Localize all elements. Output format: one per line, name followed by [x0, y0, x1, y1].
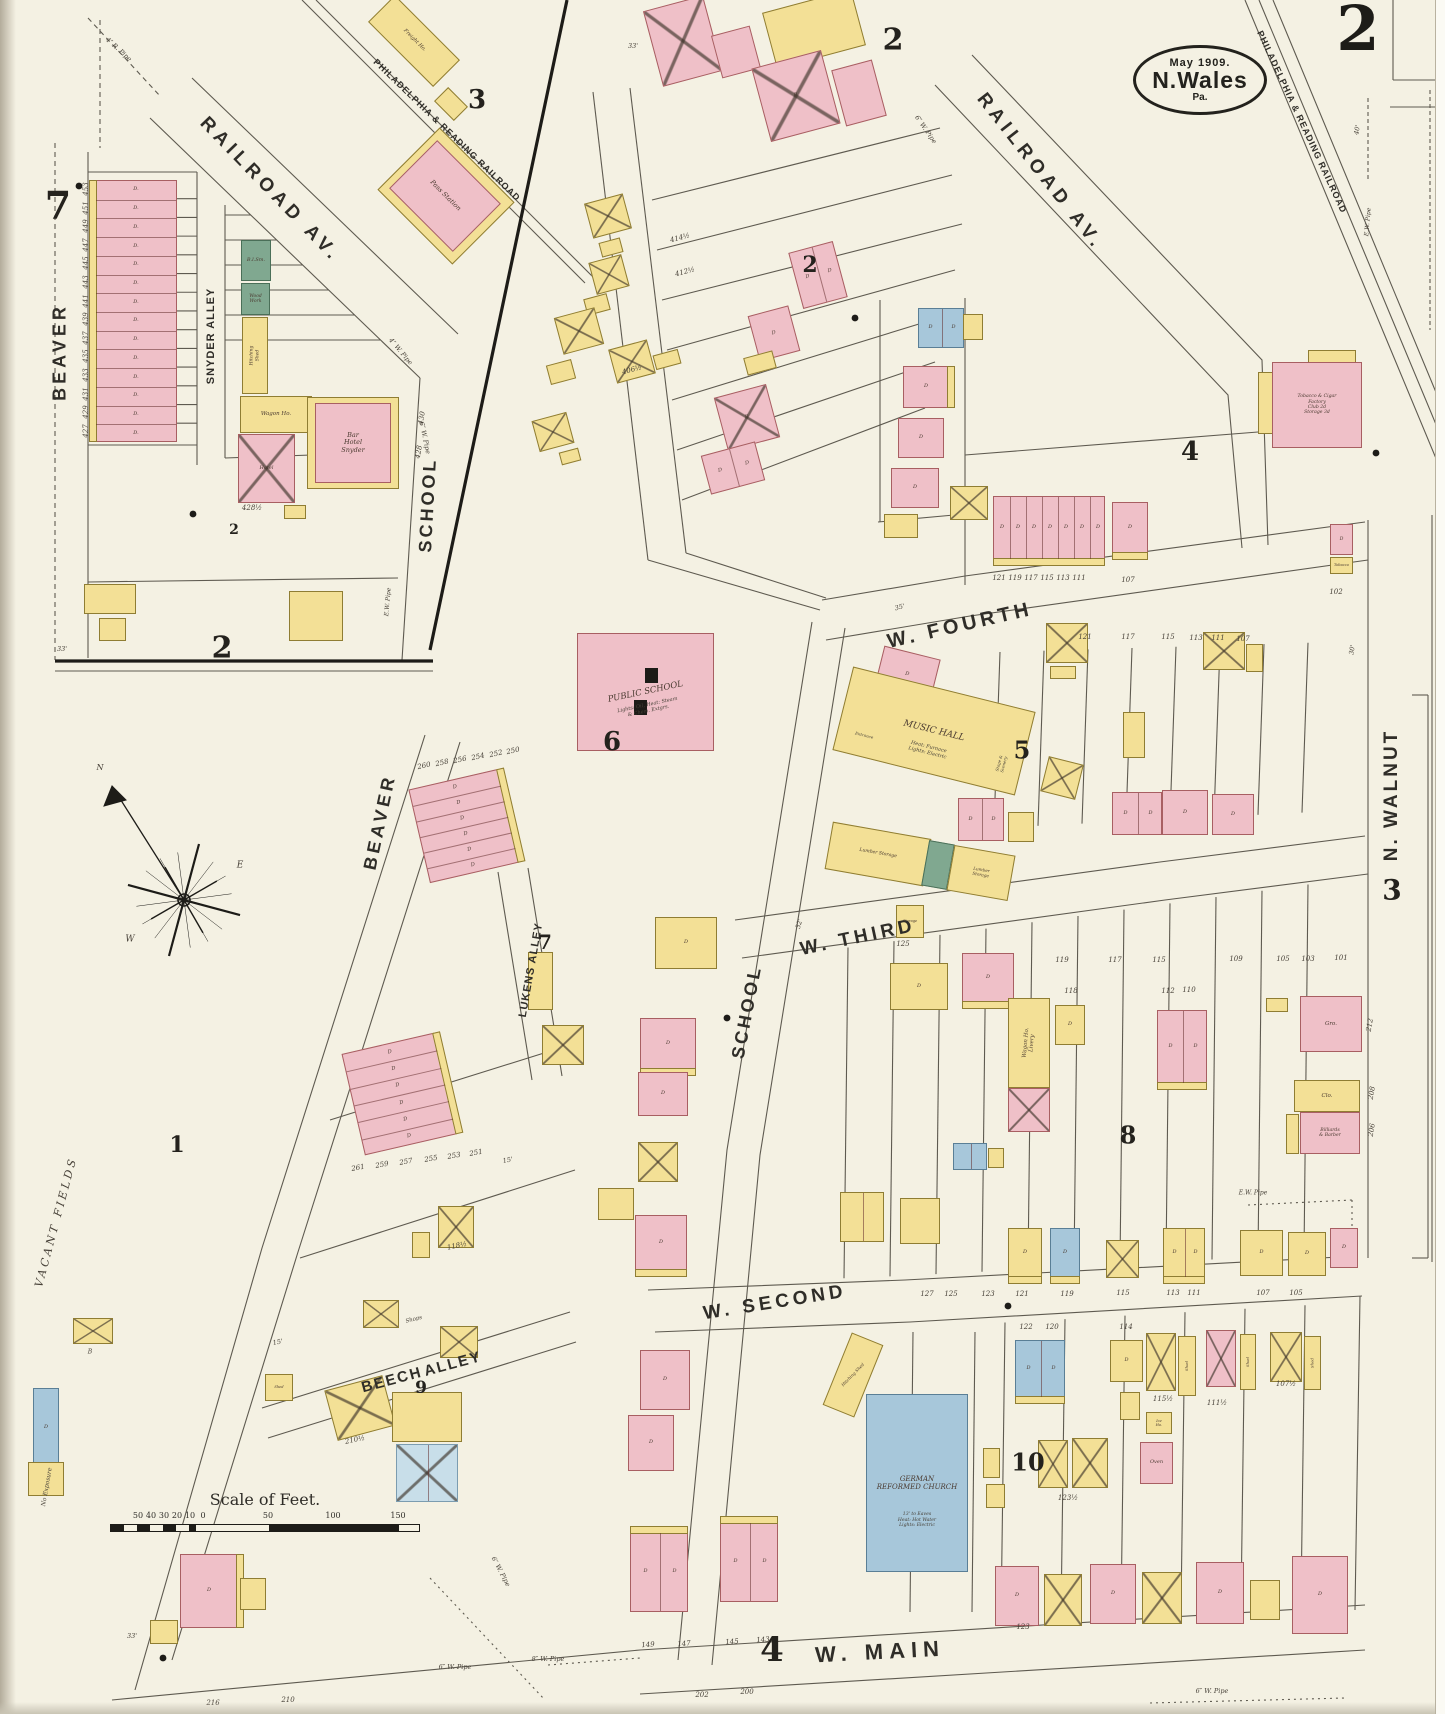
- barn: [1044, 1574, 1082, 1626]
- blacksmith-shop: B.l.Sm.: [241, 240, 271, 281]
- livery: Wagon Ho. Livery: [1008, 998, 1050, 1088]
- scale-tick: 40: [146, 1511, 156, 1520]
- house-number: 435: [82, 349, 90, 362]
- scale-tick: 50: [263, 1511, 273, 1520]
- dwelling: D: [635, 1215, 687, 1271]
- outbuilding: [240, 1578, 266, 1610]
- map-annotation: 35': [894, 603, 906, 613]
- dwelling-pair: DD: [1163, 1228, 1205, 1278]
- map-annotation: E.W. Pipe: [1363, 207, 1373, 236]
- dwelling: D: [1055, 1005, 1085, 1045]
- block-number: 6: [603, 727, 621, 757]
- barn: [542, 1025, 584, 1065]
- porch: [962, 1001, 1014, 1009]
- street-label-beaver: BEAVER: [50, 303, 71, 401]
- house-number: 110: [1182, 986, 1195, 994]
- house-number: 115: [1116, 1289, 1129, 1297]
- building-label: Tobacco: [1331, 558, 1352, 573]
- porch: [635, 1269, 687, 1277]
- house-number: 117: [1108, 956, 1121, 964]
- map-annotation: 4″ W. Pipe: [386, 337, 413, 367]
- hitching-shed: Hitching Shed: [823, 1332, 884, 1417]
- house-number: 111: [1072, 574, 1085, 582]
- outbuilding: [1246, 644, 1263, 672]
- outbuilding: [284, 505, 306, 519]
- house-number: 123: [1016, 1623, 1029, 1631]
- house-number: 107: [1236, 635, 1249, 643]
- dwelling: [643, 0, 723, 87]
- outbuilding: [150, 1620, 178, 1644]
- building-label: D: [1009, 1229, 1041, 1277]
- building-label: D: [750, 1523, 779, 1601]
- dwelling: D: [1050, 1228, 1080, 1278]
- building-label: D: [959, 799, 982, 840]
- street-label-w-main: W. MAIN: [814, 1636, 945, 1669]
- scan-edge-bottom: [0, 1702, 1445, 1714]
- dwelling: D: [751, 50, 840, 142]
- sheet-number: 2: [1318, 0, 1398, 65]
- building-label: D: [1010, 497, 1026, 559]
- house-number: 111: [1211, 634, 1224, 642]
- rowhouses-beaver-lower: DDDDDD: [342, 1033, 458, 1156]
- building-label: D: [891, 964, 947, 1009]
- street-label-n-walnut: N. WALNUT: [1381, 729, 1403, 862]
- dwelling-pair: [953, 1143, 987, 1170]
- building-label: Lumber Storage: [948, 846, 1015, 900]
- building-label: D.: [96, 406, 176, 425]
- scale-tick: 50: [133, 1511, 143, 1520]
- outbuilding: [983, 1448, 1000, 1478]
- scale-label: Scale of Feet.: [110, 1490, 420, 1509]
- map-annotation: 6″ W. Pipe: [489, 1556, 511, 1589]
- building-label: D.: [96, 275, 176, 294]
- house-number: 145: [725, 1637, 739, 1646]
- house-number: 115: [1040, 574, 1053, 582]
- map-annotation: 30': [1348, 644, 1357, 655]
- building-label: GERMAN REFORMED CHURCH: [867, 1395, 967, 1571]
- dwelling: D: [1112, 502, 1148, 554]
- building-label: D: [721, 1523, 750, 1601]
- barn: [584, 193, 632, 238]
- dwelling: [900, 1198, 940, 1244]
- block-number: 4: [1181, 437, 1199, 467]
- map-annotation: 4″ R. Pipe: [103, 36, 132, 63]
- tobacco-shop: Tobacco: [1330, 557, 1353, 574]
- building-label: D: [982, 799, 1005, 840]
- building-label: D: [715, 385, 779, 450]
- scan-edge-right: [1435, 0, 1445, 1714]
- pass-station: Pass Station: [389, 140, 501, 252]
- billiards-barber: Billiards & Barber: [1300, 1112, 1360, 1154]
- house-number: 123½: [1058, 1494, 1078, 1502]
- scale-ticks: 5040302010050100150: [110, 1511, 420, 1523]
- building-label: D: [1183, 1011, 1208, 1083]
- building-label: D.: [96, 181, 176, 200]
- street-label-railroad-av-: RAILROAD AV.: [972, 89, 1108, 255]
- block-number: 2: [229, 522, 239, 538]
- house-number: 253: [447, 1151, 462, 1162]
- house-number: 449: [82, 219, 90, 232]
- house-number: 147: [677, 1639, 691, 1648]
- outbuilding: [84, 584, 136, 614]
- house-number: 441: [82, 294, 90, 307]
- building-label: Tobacco & Cigar Factory Club 2d Storage …: [1273, 363, 1361, 447]
- dwelling: D: [1292, 1556, 1348, 1634]
- street-label-school: SCHOOL: [728, 963, 767, 1060]
- dwelling: D: [1162, 790, 1208, 835]
- outbuilding: [559, 448, 582, 466]
- clothing-store: Clo.: [1294, 1080, 1360, 1112]
- scale-tick: 100: [325, 1511, 340, 1520]
- building-label: D.: [96, 424, 176, 443]
- scale-tick: 150: [390, 1511, 405, 1520]
- block-number: 3: [468, 85, 486, 115]
- block-number: 7: [538, 930, 552, 954]
- building-label: Bar Hotel Snyder: [316, 404, 390, 482]
- building-label: D: [753, 51, 840, 141]
- building-label: D: [1185, 1229, 1206, 1277]
- dwelling: [392, 1392, 462, 1442]
- building-label: D: [1113, 793, 1138, 834]
- house-number: 117: [1024, 574, 1037, 582]
- building-label: D: [656, 918, 716, 968]
- dwelling: D: [1288, 1232, 1326, 1276]
- rowhouses-w-fourth: DDDDDDD: [993, 496, 1105, 560]
- outbuilding: [884, 514, 918, 538]
- house-number: 119: [1060, 1290, 1073, 1298]
- house-number: 107: [1256, 1289, 1269, 1297]
- barn: [1072, 1438, 1108, 1488]
- house-number: 443: [82, 275, 90, 288]
- rowhouses-beaver: D.D.D.D.D.D.D.D.D.D.D.D.D.D.: [95, 180, 177, 442]
- scale-tick: 30: [159, 1511, 169, 1520]
- outbuilding: [1250, 1580, 1280, 1620]
- building-label: D: [1074, 497, 1090, 559]
- building-label: D: [1293, 1557, 1347, 1633]
- dwelling-pair: DD: [1157, 1010, 1207, 1084]
- german-reformed-church: GERMAN REFORMED CHURCH: [866, 1394, 968, 1572]
- wagon-house: Wagon Ho.: [240, 396, 312, 433]
- house-number: 445: [82, 256, 90, 269]
- lumber-storage: Lumber Storage: [946, 845, 1015, 901]
- dwelling: D: [1110, 1340, 1143, 1382]
- dwelling: D: [640, 1350, 690, 1410]
- house-number: 260: [417, 760, 432, 771]
- house-number: 429: [82, 405, 90, 418]
- house-number: 212: [1365, 1018, 1376, 1033]
- building-label: D: [919, 309, 942, 347]
- outbuilding: [598, 1188, 634, 1220]
- house-number: 105: [1276, 955, 1289, 963]
- outbuilding: [988, 1148, 1004, 1168]
- building-label: D: [899, 419, 943, 457]
- house-number: 109: [1229, 955, 1242, 963]
- house-number: 206: [1367, 1123, 1378, 1138]
- house-number: 200: [740, 1688, 753, 1696]
- porch: [1008, 1276, 1042, 1284]
- building-label: PUBLIC SCHOOL: [567, 621, 723, 763]
- barn: [73, 1318, 113, 1344]
- house-number: 451: [82, 201, 90, 214]
- house-number: 119: [1055, 956, 1068, 964]
- building-label: Wood Work: [242, 284, 269, 314]
- house-number: 117: [1121, 633, 1134, 641]
- dwelling: D: [1240, 1230, 1283, 1276]
- outbuilding: [743, 350, 777, 375]
- house-number: 439: [82, 312, 90, 325]
- house-number: 121: [1015, 1290, 1028, 1298]
- building-label: Hotel: [239, 435, 294, 502]
- porch: [947, 366, 955, 408]
- street-label-w-third: W. THIRD: [798, 915, 918, 961]
- building-label: D: [1241, 1231, 1282, 1275]
- building-label: D: [1164, 1229, 1185, 1277]
- block-number: 2: [212, 631, 233, 666]
- shed: Shed: [1240, 1334, 1256, 1390]
- building-label: D: [994, 497, 1010, 559]
- house-number: 113: [1189, 634, 1202, 642]
- building-label: D.: [96, 387, 176, 406]
- shed: Shed: [1304, 1336, 1321, 1390]
- building-label: D: [1111, 1341, 1142, 1381]
- building-label: D: [1016, 1341, 1041, 1397]
- map-annotation: 8″ W. Pipe: [532, 1656, 565, 1664]
- house-number: 113: [1056, 574, 1069, 582]
- map-state: Pa.: [1192, 92, 1207, 103]
- block-number: 10: [1011, 1448, 1044, 1477]
- house-number: 149: [641, 1640, 655, 1649]
- dwelling-pair: DD: [1015, 1340, 1065, 1398]
- house-number: 107½: [1276, 1380, 1296, 1388]
- building-label: Lumber Storage: [826, 823, 930, 885]
- scale-tick: 20: [172, 1511, 182, 1520]
- map-annotation: N: [97, 763, 104, 773]
- house-number: 127: [920, 1290, 933, 1298]
- oven: Oven: [1140, 1442, 1173, 1484]
- building-label: D.: [96, 200, 176, 219]
- building-label: D: [1113, 503, 1147, 553]
- barn: [531, 412, 574, 452]
- building-label: Billiards & Barber: [1301, 1113, 1359, 1153]
- dwelling-pair: DD: [958, 798, 1004, 841]
- dwelling: D: [1330, 524, 1353, 555]
- block-number: 1: [169, 1132, 184, 1158]
- house-number: 125: [944, 1290, 957, 1298]
- building-label: D: [1163, 791, 1207, 834]
- map-annotation: 33': [127, 1633, 137, 1641]
- block-number: 2: [802, 252, 817, 278]
- building-label: D: [34, 1389, 58, 1467]
- building-label: D.: [96, 256, 176, 275]
- house-number: 250: [506, 745, 521, 756]
- barn: [1040, 756, 1084, 800]
- outbuilding: [289, 591, 343, 641]
- dwelling-pair: DD: [701, 441, 765, 494]
- house-number: 143: [756, 1635, 770, 1644]
- building-label: D: [636, 1216, 686, 1270]
- outbuilding: [653, 349, 682, 370]
- building-label: D: [641, 1019, 695, 1069]
- house-number: 258: [435, 757, 450, 768]
- building-label: D: [1158, 1011, 1183, 1083]
- house-number: 433: [82, 368, 90, 381]
- livery-barn: [1008, 1088, 1050, 1132]
- ice-house: Ice Ho.: [1146, 1412, 1172, 1434]
- house-number: 123: [981, 1290, 994, 1298]
- map-annotation: 15': [502, 1156, 513, 1166]
- dwelling: D: [638, 1072, 688, 1116]
- building-label: D: [749, 307, 799, 361]
- building-label: Shed: [1287, 1356, 1339, 1371]
- map-annotation: 33': [628, 43, 638, 51]
- map-annotation: B: [88, 1348, 92, 1355]
- building-label: Hitching Shed: [218, 344, 293, 368]
- outbuilding: [99, 618, 126, 641]
- dwelling: D: [748, 305, 801, 361]
- scan-edge-left: [0, 0, 16, 1714]
- house-number: 125: [896, 940, 909, 948]
- building-label: D: [1331, 1229, 1357, 1267]
- scale-tick: 0: [200, 1511, 205, 1520]
- building-label: D: [181, 1555, 237, 1627]
- building-label: Clo.: [1295, 1081, 1359, 1111]
- building-label: D.: [96, 331, 176, 350]
- house-number: 447: [82, 238, 90, 251]
- building-label: MUSIC HALL: [834, 668, 1035, 795]
- map-annotation: 13' to Eaves Heat: Hot Water Lights: Ele…: [898, 1512, 936, 1529]
- dwelling: D: [655, 917, 717, 969]
- house-number: 120: [1045, 1323, 1058, 1331]
- street-label-w-second: W. SECOND: [702, 1281, 848, 1325]
- block-number: 5: [1014, 736, 1031, 765]
- building-label: D: [639, 1073, 687, 1115]
- building-label: D.: [96, 368, 176, 387]
- house-number: 251: [469, 1148, 484, 1159]
- outbuilding: [963, 314, 983, 340]
- house-number: 121: [992, 574, 1005, 582]
- hotel-snyder: Bar Hotel Snyder: [315, 403, 391, 483]
- sanborn-map-sheet: D.D.D.D.D.D.D.D.D.D.D.D.D.D.B.l.Sm.Wood …: [0, 0, 1445, 1714]
- music-hall: MUSIC HALL: [832, 667, 1035, 796]
- house-number: 414½: [669, 231, 691, 244]
- building-label: D.: [96, 218, 176, 237]
- map-annotation: E.W. Pipe: [383, 587, 393, 616]
- house-number: 256: [453, 754, 468, 765]
- house-number: 261: [351, 1163, 366, 1174]
- building-label: Oven: [1141, 1443, 1172, 1483]
- house-number: 105: [1289, 1289, 1302, 1297]
- building-label: D: [1197, 1563, 1243, 1623]
- building-label: Hitching Shed: [815, 1337, 892, 1413]
- house-number: 114: [1119, 1323, 1132, 1331]
- block-number: 7: [45, 183, 71, 228]
- house-number: 427: [82, 424, 90, 437]
- outbuilding: [1266, 998, 1288, 1012]
- barn: [950, 486, 988, 520]
- outbuilding: [1123, 712, 1145, 758]
- building-label: D: [1091, 1565, 1135, 1623]
- barn: [554, 307, 604, 355]
- building-label: D: [1331, 525, 1352, 554]
- dwelling: D: [1330, 1228, 1358, 1268]
- house-number: 115: [1152, 956, 1165, 964]
- dwelling-pair: DD: [788, 241, 847, 309]
- house-number: 101: [1334, 954, 1347, 962]
- block-number: 9: [415, 1378, 427, 1398]
- grocery: Gro.: [1300, 996, 1362, 1052]
- street-label-w-fourth: W. FOURTH: [885, 598, 1035, 654]
- tobacco-cigar-factory: Tobacco & Cigar Factory Club 2d Storage …: [1272, 362, 1362, 448]
- scale-tick: 10: [185, 1511, 195, 1520]
- dwelling: D: [628, 1415, 674, 1471]
- house-number: 257: [399, 1157, 414, 1168]
- barn: [1046, 623, 1088, 663]
- outbuilding: [1050, 666, 1076, 679]
- dwelling: D: [33, 1388, 59, 1468]
- hotel: Hotel: [238, 434, 295, 503]
- outbuilding: [1120, 1392, 1140, 1420]
- building-label: D: [1138, 793, 1163, 834]
- barn: [1142, 1572, 1182, 1624]
- dwelling: D: [1196, 1562, 1244, 1624]
- barn: [1106, 1240, 1139, 1278]
- building-label: D: [1090, 497, 1106, 559]
- dwelling: D: [903, 366, 949, 408]
- barn: [608, 339, 656, 383]
- rowhouses-beaver-upper: DDDDDD: [408, 769, 519, 883]
- building-label: D: [1041, 1341, 1066, 1397]
- building-label: D.: [96, 349, 176, 368]
- dwelling-pair: DD: [720, 1522, 778, 1602]
- map-annotation: 6″ W. Pipe: [439, 1664, 472, 1672]
- map-city: N.Wales: [1152, 69, 1248, 92]
- dwelling: D: [995, 1566, 1039, 1626]
- map-annotation: 33': [57, 646, 67, 654]
- building-label: D.: [96, 293, 176, 312]
- dwelling-pair: DD: [1112, 792, 1162, 835]
- house-number: 115: [1161, 633, 1174, 641]
- dwelling: D: [1008, 1228, 1042, 1278]
- building-label: D: [1058, 497, 1074, 559]
- map-title-oval: May 1909. N.Wales Pa.: [1133, 45, 1267, 115]
- scale-bar: [110, 1524, 420, 1532]
- building-label: D: [1056, 1006, 1084, 1044]
- shed: Shed: [265, 1374, 293, 1401]
- building-label: Ice Ho.: [1147, 1413, 1171, 1433]
- street-label-school: SCHOOL: [415, 457, 441, 553]
- block-number: 8: [1120, 1121, 1137, 1150]
- dwelling: D: [898, 418, 944, 458]
- house-number: 254: [471, 751, 486, 762]
- house-number: 437: [82, 331, 90, 344]
- chimney: [645, 668, 658, 683]
- house-number: 428½: [242, 504, 262, 512]
- street-label-snyder-alley: SNYDER ALLEY: [205, 288, 217, 385]
- building-label: D: [996, 1567, 1038, 1625]
- public-school: PUBLIC SCHOOL: [577, 633, 714, 751]
- house-number: 202: [695, 1691, 708, 1699]
- barn: [638, 1142, 678, 1182]
- wood-work-shop: Wood Work: [241, 283, 270, 315]
- house-number: 412½: [674, 265, 696, 278]
- shed: Shed: [1178, 1336, 1196, 1396]
- dwelling: D: [640, 1018, 696, 1070]
- house-number: 102: [1329, 588, 1342, 596]
- dwelling: D: [962, 953, 1014, 1003]
- porch: [1112, 552, 1148, 560]
- house-number: 453: [82, 182, 90, 195]
- map-annotation: Shops: [405, 1315, 423, 1326]
